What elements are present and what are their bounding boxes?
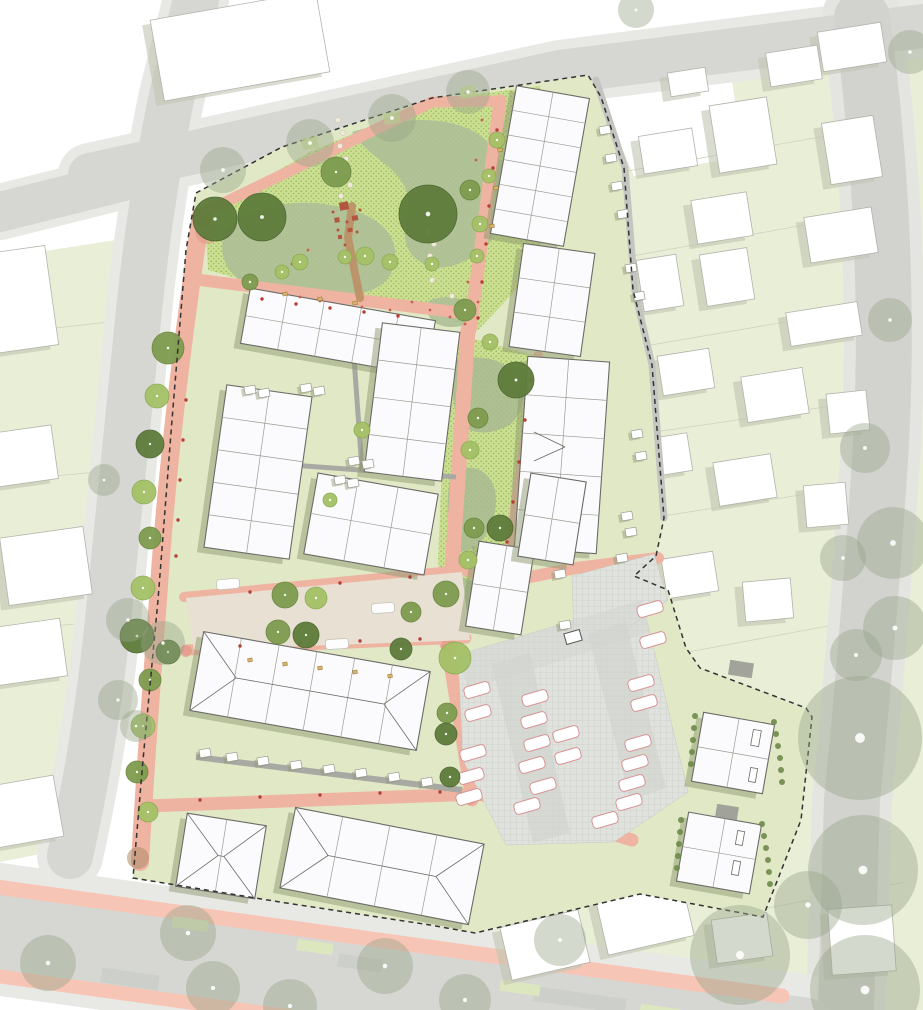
garden-shed <box>599 125 611 135</box>
masterplan-svg <box>0 0 923 1010</box>
playground <box>352 215 359 221</box>
hedge <box>765 857 771 863</box>
flower-dot <box>307 249 310 252</box>
masterplan-page <box>0 0 923 1010</box>
context-tree-center <box>463 998 467 1002</box>
tree-center <box>167 347 170 350</box>
hedge <box>775 743 781 749</box>
context-building <box>0 775 64 849</box>
context-building <box>0 618 68 685</box>
garden-shed <box>313 386 325 396</box>
garden-shed <box>421 777 433 787</box>
tree-center <box>400 648 402 650</box>
playground <box>332 211 335 214</box>
context-building <box>638 128 697 174</box>
tree-center <box>149 443 151 445</box>
entrance-marker <box>248 590 251 593</box>
flower-dot <box>449 316 452 319</box>
flower-dot <box>429 309 432 312</box>
context-tree-center <box>135 725 138 728</box>
entrance-marker <box>511 500 514 503</box>
entrance-marker <box>495 128 498 131</box>
context-tree-center <box>308 141 312 145</box>
tree-center <box>469 449 471 451</box>
context-tree-center <box>805 902 810 907</box>
hedge <box>692 713 698 719</box>
tree-center <box>476 255 478 257</box>
context-tree-center <box>288 1004 292 1008</box>
flower-dot <box>475 159 478 162</box>
entrance-marker <box>378 791 381 794</box>
garden-shed <box>348 456 360 466</box>
tree-center <box>445 593 447 595</box>
tree-center <box>389 261 391 263</box>
tree-center <box>477 417 479 419</box>
context-tree-center <box>103 479 106 482</box>
context-tree-center <box>126 618 130 622</box>
entrance-marker <box>505 540 508 543</box>
garden-shed <box>559 620 571 630</box>
hedge <box>771 719 777 725</box>
context-tree-center <box>186 931 190 935</box>
tree-center <box>489 341 491 343</box>
garden-shed <box>362 459 374 469</box>
tree-center <box>467 559 469 561</box>
door-marker <box>247 658 252 662</box>
stepping-stone <box>347 182 352 187</box>
tree-center <box>277 631 279 633</box>
garden-shed <box>290 760 302 770</box>
entrance-marker <box>358 639 361 642</box>
context-building <box>742 578 793 622</box>
entrance-marker <box>258 795 261 798</box>
plan-layers <box>0 0 923 1010</box>
parked-car <box>371 602 395 614</box>
garden-shed <box>199 748 211 758</box>
entrance-marker <box>338 581 341 584</box>
hedge <box>773 731 779 737</box>
context-building <box>691 192 753 244</box>
flower-dot <box>389 309 392 312</box>
door-marker <box>317 666 322 670</box>
context-tree-center <box>892 625 897 630</box>
tree-center <box>305 634 307 636</box>
tree-center <box>445 733 447 735</box>
context-tree-center <box>116 698 119 701</box>
door-marker <box>352 301 357 305</box>
entrance-marker <box>318 793 321 796</box>
garden-shed <box>355 768 367 778</box>
garden-shed <box>258 388 270 398</box>
entrance-marker <box>476 316 479 319</box>
door-marker <box>489 224 494 228</box>
flower-dot <box>481 119 484 122</box>
context-tree-center <box>46 961 50 965</box>
tree-center <box>147 811 149 813</box>
hedge <box>677 829 683 835</box>
hedge <box>763 845 769 851</box>
flower-dot <box>299 296 302 299</box>
tree-center <box>344 256 346 258</box>
tree-center <box>449 776 451 778</box>
entrance-marker <box>362 310 365 313</box>
garden-shed <box>605 153 617 163</box>
tree-center <box>156 395 158 397</box>
garden-shed <box>257 756 269 766</box>
garden-shed <box>635 451 647 461</box>
context-building <box>661 551 719 599</box>
playground <box>344 244 347 247</box>
garden-shed <box>323 764 335 774</box>
tree-center <box>410 611 412 613</box>
tree-center <box>469 189 471 191</box>
garden-shed <box>625 527 637 537</box>
tree-center <box>464 309 466 311</box>
tree-center <box>335 171 337 173</box>
tree-center <box>499 527 501 529</box>
tree-center <box>260 215 264 219</box>
garden-shed <box>226 752 238 762</box>
entrance-marker <box>328 306 331 309</box>
hedge <box>779 779 785 785</box>
garden-shed <box>244 385 256 395</box>
stepping-stone <box>335 117 340 122</box>
flower-dot <box>477 301 480 304</box>
door-marker <box>497 148 502 152</box>
playground <box>337 229 340 232</box>
entrance-marker <box>438 790 441 793</box>
tree-center <box>496 139 498 141</box>
hedge <box>691 725 697 731</box>
context-tree-center <box>863 446 867 450</box>
tree-center <box>361 429 363 431</box>
context-tree-center <box>736 951 744 959</box>
context-tree-center <box>841 556 845 560</box>
garden-shed <box>347 478 359 488</box>
hedge <box>766 869 772 875</box>
hedge <box>688 761 694 767</box>
playground <box>346 221 349 224</box>
garden-shed <box>611 181 623 191</box>
context-tree-center <box>859 866 868 875</box>
tree-center <box>488 175 490 177</box>
context-tree-center <box>390 116 394 120</box>
entrance-marker <box>184 398 187 401</box>
door-marker <box>493 186 498 190</box>
flower-dot <box>464 323 467 326</box>
flower-dot <box>467 281 470 284</box>
hedge <box>761 833 767 839</box>
context-building <box>713 454 777 507</box>
garden-shed <box>621 511 633 521</box>
garden-shed <box>616 553 628 563</box>
playground <box>359 209 362 212</box>
parked-car <box>325 638 349 650</box>
playground <box>347 228 353 233</box>
context-tree-center <box>861 986 870 995</box>
hedge <box>767 881 773 887</box>
tree-center <box>249 281 251 283</box>
entrance-marker <box>294 302 297 305</box>
entrance-marker <box>484 242 487 245</box>
context-tree-center <box>558 938 562 942</box>
tree-center <box>136 771 138 773</box>
entrance-marker <box>408 575 411 578</box>
entrance-marker <box>176 518 179 521</box>
context-tree-center <box>908 50 912 54</box>
context-building <box>657 348 715 396</box>
entrance-marker <box>517 460 520 463</box>
playground <box>338 235 343 240</box>
context-tree-center <box>854 653 858 657</box>
entrance-marker <box>396 314 399 317</box>
context-building <box>0 526 92 605</box>
hedge <box>676 841 682 847</box>
pedestrian-path <box>127 847 149 869</box>
tree-center <box>454 657 457 660</box>
context-tree-center <box>466 90 470 94</box>
hedge <box>690 737 696 743</box>
playground <box>334 217 340 223</box>
tree-center <box>473 527 475 529</box>
context-building <box>699 248 755 307</box>
hedge <box>777 755 783 761</box>
door-marker <box>387 674 392 678</box>
door-marker <box>282 662 287 666</box>
hedge <box>675 853 681 859</box>
tree-center <box>315 597 317 599</box>
tree-center <box>431 263 433 265</box>
entrance-marker <box>487 204 490 207</box>
entrance-marker <box>260 297 263 300</box>
playground <box>339 201 349 210</box>
tree-center <box>149 537 151 539</box>
entrance-marker <box>181 438 184 441</box>
tree-center <box>143 491 145 493</box>
context-building <box>709 97 777 173</box>
tree-center <box>329 499 331 501</box>
context-building <box>0 425 58 487</box>
hedge <box>674 865 680 871</box>
entrance-marker <box>418 637 421 640</box>
tree-center <box>364 255 366 257</box>
context-tree-center <box>855 733 865 743</box>
flower-dot <box>361 306 364 309</box>
hedge <box>759 821 765 827</box>
context-tree-center <box>890 540 896 546</box>
entrance-marker <box>480 280 483 283</box>
tree-center <box>213 217 217 221</box>
hedge <box>678 817 684 823</box>
context-tree-center <box>635 9 638 12</box>
context-tree-center <box>221 168 225 172</box>
garden-shed <box>631 429 643 439</box>
garden-shed <box>388 772 400 782</box>
tree-center <box>426 212 431 217</box>
tree-center <box>479 223 481 225</box>
context-building <box>803 482 849 528</box>
entrance-marker <box>198 798 201 801</box>
context-tree-center <box>888 318 892 322</box>
tree-center <box>446 712 448 714</box>
tree-center <box>515 379 518 382</box>
entrance-marker <box>174 554 177 557</box>
entrance-marker <box>178 478 181 481</box>
context-building <box>741 367 809 422</box>
parked-car <box>216 578 240 590</box>
tree-center <box>299 261 301 263</box>
tree-center <box>281 271 283 273</box>
hedge <box>689 749 695 755</box>
stepping-stone <box>338 193 343 198</box>
context-tree-center <box>161 641 165 645</box>
tree-center <box>142 587 144 589</box>
stepping-stone <box>337 143 342 148</box>
tree-center <box>284 594 286 596</box>
playground <box>356 231 359 234</box>
door-marker <box>282 292 287 296</box>
stepping-stone <box>429 277 434 282</box>
hedge <box>778 767 784 773</box>
context-building <box>636 254 684 312</box>
context-tree-center <box>211 986 215 990</box>
stepping-stone <box>340 130 345 135</box>
garden-shed <box>554 569 566 579</box>
stepping-stone <box>449 293 454 298</box>
entrance-marker <box>238 644 241 647</box>
context-building <box>821 115 882 184</box>
flower-dot <box>411 301 414 304</box>
door-marker <box>317 297 322 301</box>
door-marker <box>352 670 357 674</box>
context-tree-center <box>383 964 387 968</box>
entrance-marker <box>523 418 526 421</box>
